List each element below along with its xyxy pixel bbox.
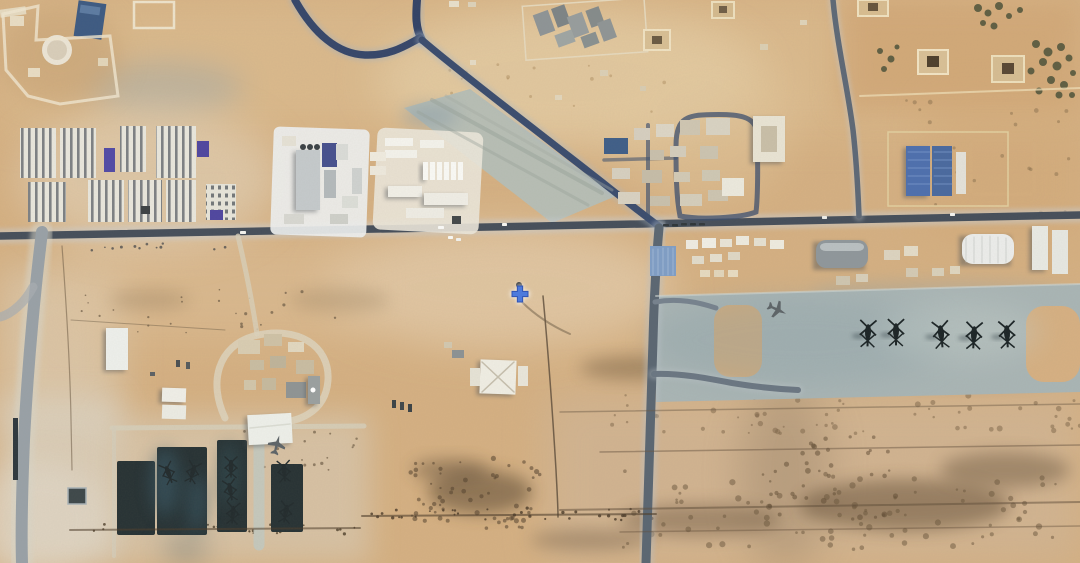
- satellite-image: Aerial satellite view of a desert milita…: [0, 0, 1080, 563]
- shrub: [769, 480, 771, 482]
- shrub: [675, 501, 678, 504]
- apron-sand-island: [1026, 306, 1080, 382]
- building: [800, 20, 807, 25]
- building: [702, 170, 720, 181]
- building: [470, 60, 476, 65]
- building: [927, 56, 939, 67]
- building: [1002, 63, 1014, 74]
- shrub: [133, 245, 136, 248]
- shrub: [838, 399, 841, 402]
- vehicle: [822, 216, 827, 219]
- soil-patch: [940, 452, 1070, 488]
- pads-access-lane: [112, 426, 364, 428]
- shrub: [923, 533, 929, 539]
- building: [336, 144, 348, 160]
- building: [264, 334, 282, 346]
- shrub: [568, 517, 571, 520]
- shrub: [240, 325, 243, 328]
- shrub: [395, 509, 398, 512]
- gray-building: [286, 382, 306, 398]
- shrub: [530, 466, 534, 470]
- shrub: [963, 489, 966, 492]
- shrub: [837, 513, 841, 517]
- shrub: [506, 517, 509, 520]
- shrub: [1054, 415, 1057, 418]
- shrub: [459, 461, 461, 463]
- shrub: [276, 532, 278, 534]
- shrub: [1057, 120, 1060, 123]
- shrub: [783, 426, 785, 428]
- shrub: [955, 426, 960, 431]
- shrub: [918, 108, 921, 111]
- shrub: [468, 498, 473, 503]
- building: [702, 238, 716, 248]
- tree: [881, 66, 887, 72]
- shrub: [882, 474, 887, 479]
- shrub: [533, 66, 536, 69]
- vehicle: [690, 223, 696, 226]
- tree: [895, 45, 900, 50]
- shrub: [303, 464, 306, 467]
- warehouse: [458, 162, 463, 180]
- building: [680, 120, 700, 135]
- shrub: [622, 546, 625, 549]
- building: [400, 402, 404, 410]
- apron-stain: [164, 532, 208, 563]
- tree: [1066, 55, 1073, 62]
- shrub: [859, 522, 863, 526]
- building: [10, 16, 24, 26]
- warehouse: [388, 186, 422, 197]
- shrub: [452, 509, 454, 511]
- tent: [728, 270, 738, 277]
- shrub: [857, 476, 863, 482]
- vehicle: [448, 236, 453, 239]
- tree: [1057, 43, 1065, 51]
- shrub: [486, 508, 488, 510]
- building: [370, 166, 386, 175]
- terrain-wash: [325, 225, 675, 349]
- building: [392, 400, 396, 408]
- shrub: [829, 535, 835, 541]
- shrub: [904, 514, 907, 517]
- shrub: [626, 542, 629, 545]
- shrub: [328, 469, 330, 471]
- shrub: [887, 511, 892, 516]
- shrub: [849, 435, 852, 438]
- shrub: [716, 526, 720, 530]
- shrub: [355, 437, 357, 439]
- shrub: [1018, 406, 1022, 410]
- shrub: [573, 105, 575, 107]
- shrub: [1016, 516, 1022, 522]
- shrub: [454, 509, 456, 511]
- shrub: [928, 120, 932, 124]
- shrub: [1051, 536, 1054, 539]
- shrub: [185, 332, 186, 333]
- shrub: [610, 423, 614, 427]
- shrub: [762, 473, 765, 476]
- shrub: [857, 514, 863, 520]
- building: [555, 95, 562, 100]
- building: [385, 150, 417, 158]
- shrub: [679, 500, 684, 505]
- shrub: [434, 511, 437, 514]
- shrub: [774, 491, 778, 495]
- shrub: [561, 511, 564, 514]
- purple-roof-building: [104, 148, 115, 172]
- shrub: [438, 495, 442, 499]
- soil-patch: [110, 290, 190, 310]
- shrub: [688, 515, 693, 520]
- shrub: [1008, 496, 1013, 501]
- shrub: [874, 516, 877, 519]
- shrub: [113, 309, 115, 311]
- shrub: [802, 484, 805, 487]
- dark-parking-pad: [117, 461, 155, 535]
- shrub: [763, 412, 767, 416]
- shrub: [774, 470, 777, 473]
- tree: [995, 2, 1003, 10]
- building: [244, 380, 256, 390]
- shrub: [313, 431, 316, 434]
- shrub: [912, 476, 917, 481]
- tree: [1028, 68, 1035, 75]
- shrub: [422, 462, 425, 465]
- building: [670, 146, 686, 157]
- building: [650, 196, 670, 206]
- shrub: [484, 518, 486, 520]
- shrub: [409, 470, 413, 474]
- shrub: [529, 95, 532, 98]
- shrub: [137, 331, 139, 333]
- shrub: [831, 422, 834, 425]
- shrub: [1073, 399, 1076, 402]
- shrub: [870, 473, 874, 477]
- shrub: [701, 427, 705, 431]
- shrub: [320, 462, 323, 465]
- shrub: [446, 519, 450, 523]
- shrub: [334, 317, 336, 319]
- vehicle: [150, 372, 155, 376]
- shrub: [509, 516, 514, 521]
- shrub: [1071, 427, 1073, 429]
- shrub: [503, 519, 507, 523]
- vehicle: [681, 223, 687, 226]
- barracks-block: [60, 128, 96, 178]
- shrub: [800, 451, 805, 456]
- tree: [1069, 92, 1075, 98]
- building: [692, 256, 704, 264]
- satellite-image-stage: Aerial satellite view of a desert milita…: [0, 0, 1080, 563]
- shrub: [111, 247, 114, 250]
- shrub: [989, 427, 994, 432]
- building: [296, 360, 314, 374]
- shrub: [527, 487, 532, 492]
- shrub: [414, 462, 417, 465]
- warehouse: [437, 162, 442, 180]
- shrub: [520, 526, 523, 529]
- shrub: [754, 509, 759, 514]
- shrub: [442, 509, 444, 511]
- shrub: [852, 547, 855, 550]
- shrub: [816, 424, 818, 426]
- shrub: [457, 512, 459, 514]
- shrub: [244, 312, 247, 315]
- shrub: [213, 526, 216, 529]
- shrub: [219, 289, 221, 291]
- shrub: [213, 248, 215, 250]
- shrub: [1064, 109, 1068, 113]
- building: [282, 136, 296, 146]
- shrub: [491, 473, 495, 477]
- shrub: [905, 99, 908, 102]
- shrub: [248, 530, 250, 532]
- building: [238, 340, 260, 354]
- tree: [985, 10, 992, 17]
- barracks-block: [156, 126, 196, 178]
- vehicle: [699, 223, 705, 226]
- tree: [877, 48, 883, 54]
- building: [836, 276, 850, 285]
- vehicle: [438, 226, 444, 229]
- industrial-building: [296, 150, 320, 210]
- building: [868, 3, 878, 11]
- shrub: [1034, 108, 1039, 113]
- shrub: [1056, 406, 1062, 412]
- shrub: [784, 462, 789, 467]
- shrub: [821, 498, 827, 504]
- shrub: [823, 436, 827, 440]
- shrub: [313, 463, 316, 466]
- shrub: [746, 501, 750, 505]
- tent: [714, 270, 724, 277]
- warehouse: [424, 193, 468, 205]
- shrub: [805, 468, 811, 474]
- shrub: [896, 509, 900, 513]
- shrub: [91, 249, 94, 252]
- shrub: [170, 323, 172, 325]
- building: [728, 252, 740, 260]
- shrub: [514, 504, 519, 509]
- shrub: [303, 524, 305, 526]
- shrub: [438, 467, 442, 471]
- shrub: [956, 488, 958, 490]
- shrub: [381, 512, 384, 515]
- barracks-block: [28, 182, 66, 222]
- shrub: [432, 502, 436, 506]
- shrub: [886, 450, 890, 454]
- shrub: [496, 63, 499, 66]
- building: [710, 254, 722, 262]
- shrub: [520, 511, 523, 514]
- shrub: [650, 110, 652, 112]
- shrub: [429, 506, 433, 510]
- building: [820, 243, 864, 251]
- tree: [1032, 40, 1040, 48]
- shrub: [430, 483, 432, 485]
- shrub: [961, 499, 965, 503]
- shrub: [432, 462, 435, 465]
- shrub: [521, 518, 526, 523]
- vehicle: [186, 362, 190, 369]
- soil-patch: [290, 288, 390, 312]
- shrub: [723, 515, 726, 518]
- vehicle: [672, 224, 678, 227]
- shrub: [755, 414, 759, 418]
- apron-stain: [880, 304, 1040, 360]
- shrub: [162, 242, 164, 244]
- building: [956, 152, 966, 194]
- shrub: [626, 421, 628, 423]
- shrub: [1014, 123, 1018, 127]
- shrub: [422, 503, 425, 506]
- shrub: [590, 77, 594, 81]
- shrub: [147, 316, 149, 318]
- shrub: [487, 492, 490, 495]
- building: [452, 216, 461, 224]
- shrub: [764, 520, 770, 526]
- shrub: [620, 519, 622, 521]
- shrub: [544, 518, 546, 520]
- shrub: [747, 545, 751, 549]
- shrub: [218, 300, 220, 302]
- shrub: [485, 526, 489, 530]
- storage-tank: [300, 144, 306, 150]
- building: [884, 250, 900, 260]
- building: [518, 366, 528, 386]
- tree: [974, 4, 982, 12]
- shrub: [864, 509, 867, 512]
- shrub: [156, 247, 158, 249]
- building: [906, 268, 918, 277]
- soil-patch: [530, 530, 650, 550]
- shrub: [104, 246, 106, 248]
- shrub: [658, 533, 662, 537]
- shrub: [804, 496, 808, 500]
- warehouse: [1032, 226, 1048, 270]
- shrub: [828, 542, 833, 547]
- shrub: [85, 294, 87, 296]
- shrub: [326, 457, 328, 459]
- blue-roof-warehouse: [932, 146, 952, 196]
- shrub: [1023, 510, 1027, 514]
- shrub: [505, 525, 509, 529]
- shrub: [971, 542, 974, 545]
- shrub: [146, 243, 149, 246]
- shrub: [778, 513, 782, 517]
- shrub: [805, 461, 809, 465]
- shrub: [721, 430, 725, 434]
- shrub: [1040, 482, 1045, 487]
- shrub: [801, 531, 805, 535]
- shrub: [950, 543, 956, 549]
- barracks-block: [166, 180, 196, 222]
- shrub: [1000, 154, 1004, 158]
- shrub: [973, 179, 976, 182]
- warehouse: [1052, 230, 1068, 274]
- shrub: [270, 311, 273, 314]
- shrub: [851, 517, 854, 520]
- shrub: [614, 414, 616, 416]
- shrub: [439, 472, 441, 474]
- shrub: [1050, 425, 1054, 429]
- shrub: [1001, 507, 1006, 512]
- building: [719, 6, 727, 13]
- shrub: [138, 247, 140, 249]
- building: [342, 196, 358, 208]
- shrub: [963, 426, 966, 429]
- shrub: [869, 449, 872, 452]
- shrub: [414, 468, 419, 473]
- blue-roof-building: [322, 143, 337, 167]
- shrub: [451, 487, 455, 491]
- shrub: [842, 403, 844, 405]
- apron-stain: [151, 448, 179, 516]
- shrub: [260, 324, 262, 326]
- barracks-block: [128, 180, 162, 222]
- shrub: [343, 532, 346, 535]
- shrub: [678, 492, 681, 495]
- shrub: [882, 513, 886, 517]
- soil-patch: [412, 459, 488, 481]
- shrub: [675, 499, 678, 502]
- shrub: [779, 432, 782, 435]
- dome-tank-top: [47, 40, 67, 60]
- shrub: [706, 542, 712, 548]
- shrub: [303, 440, 306, 443]
- shrub: [662, 81, 666, 85]
- shrub: [497, 521, 501, 525]
- shrub: [224, 246, 227, 249]
- building: [656, 124, 674, 137]
- building: [288, 342, 304, 352]
- shrub: [989, 524, 992, 527]
- shrub: [662, 430, 665, 433]
- shrub: [609, 74, 612, 77]
- barracks-block: [20, 128, 56, 178]
- vehicle: [240, 231, 246, 234]
- shrub: [429, 510, 431, 512]
- shrub: [994, 479, 1000, 485]
- shrub: [818, 470, 821, 473]
- shrub: [834, 499, 840, 505]
- shrub: [370, 513, 373, 516]
- building: [760, 44, 768, 50]
- shrub: [120, 246, 123, 249]
- shrub: [820, 536, 826, 542]
- shrub: [514, 518, 519, 523]
- shrub: [800, 429, 805, 434]
- tent: [700, 270, 710, 277]
- tree: [1039, 58, 1047, 66]
- shrub: [815, 450, 820, 455]
- building: [352, 168, 362, 194]
- shrub: [862, 430, 864, 432]
- shrub: [889, 533, 894, 538]
- shrub: [301, 459, 303, 461]
- building: [284, 214, 304, 224]
- building: [330, 214, 348, 224]
- warehouse: [162, 405, 186, 420]
- building: [950, 266, 960, 274]
- shrub: [506, 75, 510, 79]
- shrub: [461, 489, 466, 494]
- shrub: [795, 531, 798, 534]
- shrub: [1054, 172, 1058, 176]
- small-dark-structure: [68, 488, 86, 504]
- shrub: [981, 535, 984, 538]
